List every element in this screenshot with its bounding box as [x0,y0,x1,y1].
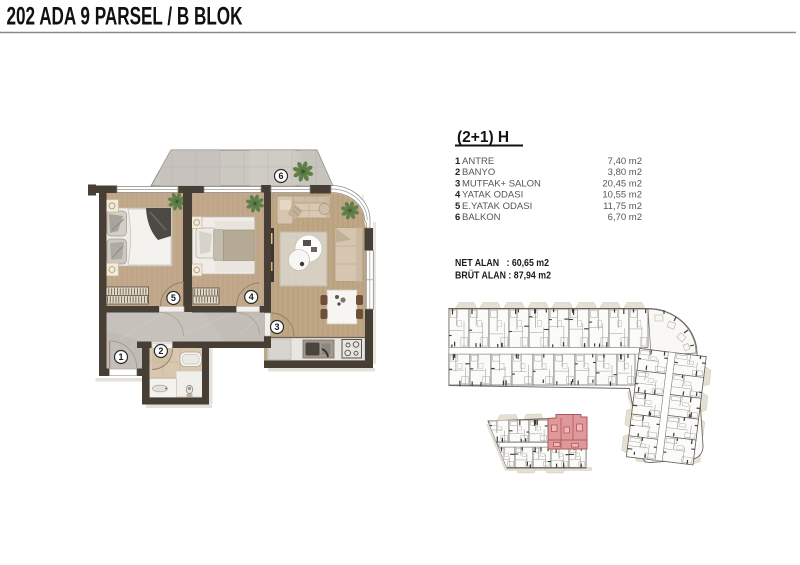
svg-text:MUTFAK+ SALON: MUTFAK+ SALON [462,178,541,189]
svg-text:BRÜT ALAN : 87,94 m2: BRÜT ALAN : 87,94 m2 [455,269,551,282]
svg-text:1: 1 [118,352,123,362]
svg-text:(2+1) H: (2+1) H [457,129,509,146]
svg-text:3: 3 [274,322,279,332]
svg-text:5: 5 [455,201,461,212]
svg-text:6: 6 [278,171,283,181]
svg-text:E.YATAK ODASI: E.YATAK ODASI [462,201,532,212]
svg-text:4: 4 [455,190,461,201]
svg-text:1: 1 [455,156,461,167]
svg-text:2: 2 [455,167,460,178]
svg-text:BALKON: BALKON [462,212,501,223]
svg-text:ANTRE: ANTRE [462,156,494,167]
svg-text:20,45 m2: 20,45 m2 [602,178,642,189]
svg-text:10,55 m2: 10,55 m2 [602,190,642,201]
svg-text:5: 5 [171,293,176,303]
svg-text:7,40 m2: 7,40 m2 [608,156,642,167]
svg-text:11,75 m2: 11,75 m2 [603,201,642,212]
svg-text:6,70 m2: 6,70 m2 [608,212,642,223]
svg-text:4: 4 [249,292,254,302]
svg-text:NET ALAN : 60,65 m2: NET ALAN : 60,65 m2 [455,257,549,269]
svg-text:YATAK ODASI: YATAK ODASI [462,190,523,201]
svg-text:202 ADA 9 PARSEL / B BLOK: 202 ADA 9 PARSEL / B BLOK [7,3,243,31]
svg-text:3: 3 [455,178,460,189]
svg-text:3,80 m2: 3,80 m2 [608,167,642,178]
svg-text:BANYO: BANYO [462,167,495,178]
svg-text:6: 6 [455,212,460,223]
svg-text:2: 2 [158,346,163,356]
